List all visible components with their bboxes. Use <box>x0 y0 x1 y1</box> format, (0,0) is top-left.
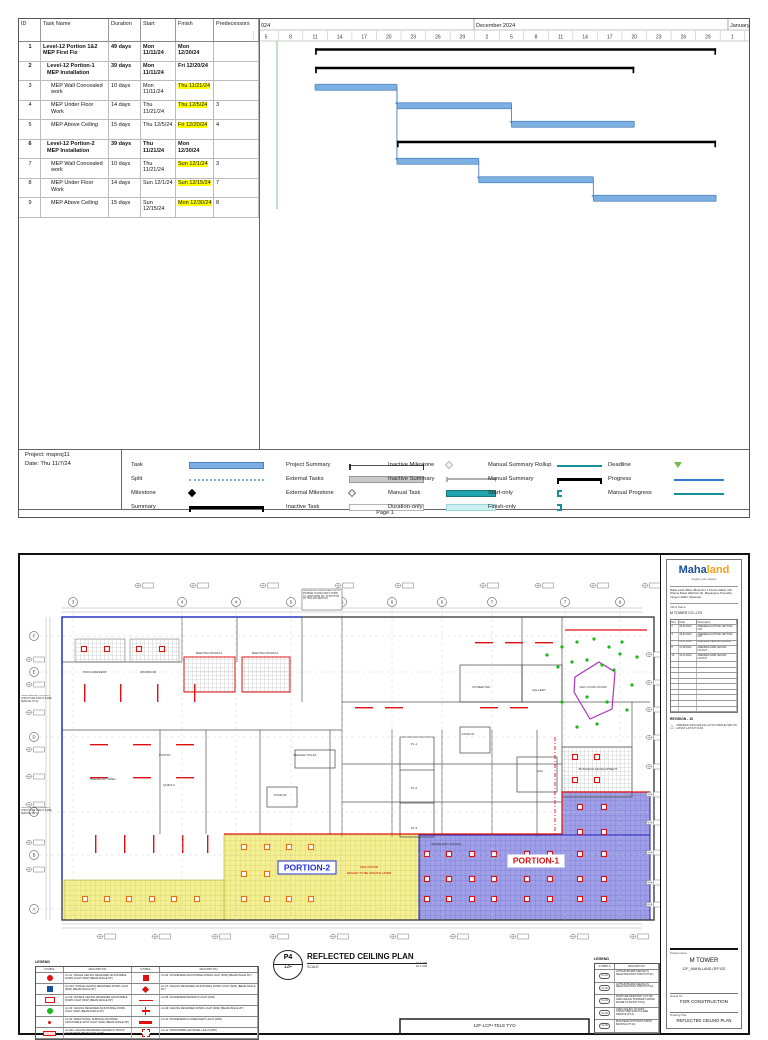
col-header-finish: Finish <box>176 19 214 41</box>
open-ceiling-note: OPEN CEILING (TO PAINT) STRUCTURE SOFFIT… <box>21 807 55 815</box>
revision-number <box>671 662 679 667</box>
task-predecessor <box>214 42 259 61</box>
task-duration: 10 days <box>109 81 141 100</box>
task-start: Thu 11/21/24 <box>141 140 176 159</box>
col-header-duration: Duration <box>109 19 141 41</box>
svg-text:PL-1: PL-1 <box>411 742 418 746</box>
task-predecessor: 8 <box>214 198 259 217</box>
gantt-task-row: 4 MEP Under Floor Work 14 days Thu 11/21… <box>19 101 259 121</box>
revision-date: 21.08.2024 <box>679 646 697 653</box>
svg-text:17: 17 <box>607 35 613 41</box>
revision-desc <box>697 695 737 700</box>
svg-text:11: 11 <box>558 35 563 41</box>
ceiling-description: MOISTURE RESISTANT GYP. BD. GRID CEILING… <box>615 995 659 1007</box>
cl-h-desc: DESCRIPTION <box>615 964 659 969</box>
revision-number: 7 <box>671 641 679 646</box>
revision-number: 2 <box>671 625 679 632</box>
task-start: Mon 11/11/24 <box>141 42 176 61</box>
ceiling-tag-icon: CL-03 <box>599 998 610 1004</box>
mahaland-logo: Mahaland <box>667 564 741 576</box>
ceiling-tag-icon: CL-02 <box>599 985 610 991</box>
light-symbol-icon <box>48 1021 51 1024</box>
task-start: Mon 11/11/24 <box>141 62 176 81</box>
light-description: LG-01: SINGLE CEILING RECESSED ADJUSTABL… <box>64 973 132 983</box>
legend-label-deadline: Deadline <box>608 462 631 468</box>
light-symbol-icon <box>142 1007 150 1015</box>
legend-swatch-milestone-black <box>188 489 196 497</box>
svg-text:26: 26 <box>435 35 441 41</box>
svg-text:PL-3: PL-3 <box>411 826 418 830</box>
task-name: Level-12 Portion-1 MEP Installation <box>41 62 109 81</box>
ceiling-description: GYPSUM BOARD CEILING IN SELECTED PAINT F… <box>615 983 659 995</box>
svg-text:PANTRY: PANTRY <box>159 753 171 757</box>
ceiling-tag-icon: CL-04 <box>599 1010 610 1016</box>
task-id: 9 <box>19 198 41 217</box>
meeting-room-hatched-area <box>184 657 235 692</box>
project-name-text: Project: msproj11 <box>25 452 121 458</box>
legend-swatch-milestone-pale <box>445 461 453 469</box>
gantt-task-row: 2 Level-12 Portion-1 MEP Installation 39… <box>19 62 259 82</box>
task-finish: Mon 12/30/24 <box>178 44 199 57</box>
revision-number: 10 <box>671 654 679 661</box>
svg-text:8: 8 <box>289 35 292 41</box>
svg-text:BREAKOUT AREA: BREAKOUT AREA <box>90 777 115 781</box>
lighting-legend-row: LG-04A: CEILING RECESSED MAGNETIC TRACK … <box>36 1028 258 1039</box>
svg-text:QUIET-2: QUIET-2 <box>163 783 175 787</box>
legend-top-border <box>19 449 749 450</box>
delta-triangle-icon: △ <box>670 724 674 730</box>
task-id: 5 <box>19 120 41 139</box>
svg-text:29: 29 <box>460 35 466 41</box>
revision-date <box>679 701 697 706</box>
project-info-box: Project: msproj11 Date: Thu 11/7/24 <box>19 449 122 509</box>
svg-text:CEO LIVING ROOM: CEO LIVING ROOM <box>579 685 607 689</box>
task-id: 2 <box>19 62 41 81</box>
svg-text:WARROOM: WARROOM <box>140 670 157 674</box>
task-predecessor: 7 <box>214 179 259 198</box>
legend-swatch-start-only <box>557 490 562 497</box>
ceiling-legend-row: CL-03 MOISTURE RESISTANT GYP. BD. GRID C… <box>595 995 659 1008</box>
task-finish: Thu 12/5/24 <box>178 102 207 108</box>
light-symbol-icon <box>45 997 55 1003</box>
svg-text:23: 23 <box>411 35 417 41</box>
revision-row: 10 04.10.2024 AMENDED GRID CEILING LAYOU… <box>671 654 737 662</box>
revision-number <box>671 707 679 712</box>
svg-text:FEMALE TOILET: FEMALE TOILET <box>293 753 316 757</box>
ceiling-legend-title: LEGEND <box>594 957 660 961</box>
ceiling-legend-row: CL-02 GYPSUM BOARD CEILING IN SELECTED P… <box>595 983 659 996</box>
revision-desc <box>697 662 737 667</box>
legend-label-manual-progress: Manual Progress <box>608 490 652 496</box>
light-symbol-icon <box>139 1021 152 1024</box>
task-start: Thu 11/21/24 <box>141 101 176 120</box>
light-symbol-icon <box>143 975 149 981</box>
ceiling-description: OPEN CEILING TO PAINT STRUCTURE SOFFIT &… <box>615 1008 659 1020</box>
legend-label-start-only: Start-only <box>488 490 513 496</box>
gantt-task-table: ID Task Name Duration Start Finish Prede… <box>19 19 259 218</box>
revision-row: 3 28.04.2024 AMENDED LIGHTING SETTING OU… <box>671 633 737 641</box>
svg-text:VP MEETING: VP MEETING <box>472 685 491 689</box>
light-symbol-icon <box>47 986 53 992</box>
revision-number <box>671 673 679 678</box>
light-description: LG-02: DOUBLE CEILING RECESSED ADJUSTABL… <box>64 995 132 1005</box>
task-name: Level-12 Portion-2 MEP Installation <box>41 140 109 159</box>
lighting-legend-row: LG-01A: SINGLE CEILING RECESSED DOWN LIG… <box>36 984 258 995</box>
drawing-title-label: Drawing Title: <box>670 1013 738 1017</box>
task-name: MEP Under Floor Work <box>41 101 109 120</box>
issued-for-label: Issued for: <box>670 994 738 998</box>
issued-for-block: Issued for: FOR CONSTRUCTION <box>670 993 738 1004</box>
light-symbol-icon <box>47 1008 53 1014</box>
legend-swatch-split-dotted <box>189 479 264 481</box>
gantt-bars <box>315 48 716 201</box>
svg-text:11: 11 <box>312 35 317 41</box>
task-start: Thu 12/5/24 <box>141 120 176 139</box>
svg-text:14: 14 <box>582 35 588 41</box>
revision-date <box>679 662 697 667</box>
gantt-task-row: 6 Level-12 Portion-2 MEP Installation 39… <box>19 140 259 160</box>
light-description: LG-04A: CEILING RECESSED MAGNETIC TRACK … <box>64 1028 132 1038</box>
task-duration: 15 days <box>109 198 141 217</box>
task-predecessor <box>214 81 259 100</box>
task-predecessor: 4 <box>214 120 259 139</box>
task-name: MEP Under Floor Work <box>41 179 109 198</box>
ll-h-symbol2: SYMBOL <box>132 967 160 972</box>
issued-for-value: FOR CONSTRUCTION <box>670 999 738 1004</box>
revision-note-text: AMENDED GRID CEILING LAYOUT REFLECTED ON… <box>676 724 738 730</box>
legend-label-external-tasks: External Tasks <box>286 476 324 482</box>
task-start: Sun 12/1/24 <box>141 179 176 198</box>
office-address: Maha Land Office: Block No (7-KA A/1+GRA… <box>670 586 738 600</box>
revision-date <box>679 673 697 678</box>
svg-text:23: 23 <box>656 35 662 41</box>
revision-row: 2 05.03.2024 AMENDED LIGHTING SETTING OU… <box>671 625 737 633</box>
svg-text:5: 5 <box>265 35 268 41</box>
ll-h-desc2: DESCRIPTION <box>160 967 258 972</box>
revision-desc: AMENDED LIGHTING SETTING OUT <box>697 633 737 640</box>
gantt-task-row: 3 MEP Wall Concealed work 10 days Mon 11… <box>19 81 259 101</box>
svg-text:DESIGN TO BE UPDATE LATER: DESIGN TO BE UPDATE LATER <box>347 871 392 875</box>
svg-text:20: 20 <box>631 35 637 41</box>
task-duration: 39 days <box>109 62 141 81</box>
svg-text:PROCUREMENT: PROCUREMENT <box>83 670 107 674</box>
task-duration: 15 days <box>109 120 141 139</box>
gantt-table-header: ID Task Name Duration Start Finish Prede… <box>19 19 259 42</box>
task-id: 4 <box>19 101 41 120</box>
task-name: MEP Above Ceiling <box>41 120 109 139</box>
legend-swatch-line-teal <box>557 465 602 468</box>
task-bar <box>315 84 397 90</box>
svg-text:PORTION-1: PORTION-1 <box>513 856 560 866</box>
legend-label-task: Task <box>131 462 143 468</box>
light-description: LG-07: CEILING RECESSED ADJUSTABLE DOWN … <box>160 984 258 994</box>
legend-label-manual-task: Manual Task <box>388 490 420 496</box>
col-header-id: ID <box>19 19 41 41</box>
logo-tagline: begins your dream <box>667 577 741 581</box>
task-bar <box>397 103 512 109</box>
light-symbol-icon <box>142 1029 150 1037</box>
gantt-task-row: 5 MEP Above Ceiling 15 days Thu 12/5/24 … <box>19 120 259 140</box>
project-name: M TOWER <box>670 958 738 964</box>
legend-label-inactive-milestone: Inactive Milestone <box>388 462 434 468</box>
task-bar <box>512 121 635 127</box>
light-description: LG-09: CEILING RECESSED DOWN LIGHT (60W)… <box>160 1006 258 1016</box>
svg-text:024: 024 <box>261 23 270 29</box>
revision-desc: AMENDED LIGHTING SETTING OUT <box>697 625 737 632</box>
task-predecessor: 3 <box>214 159 259 178</box>
revision-number <box>671 695 679 700</box>
light-description: LG-03: CEILING RECESSED ADJUSTABLE DOWN … <box>64 1006 132 1016</box>
task-finish: Mon 12/30/24 <box>178 200 212 206</box>
svg-text:5: 5 <box>510 35 513 41</box>
revision-date: 05.03.2024 <box>679 625 697 632</box>
svg-text:E: E <box>33 670 36 675</box>
lighting-legend-row: LG-03: CEILING RECESSED ADJUSTABLE DOWN … <box>36 1006 258 1017</box>
revision-date <box>679 695 697 700</box>
task-finish: Sun 12/1/24 <box>178 161 208 167</box>
light-description: LG-04: DIRECTIONAL SURFACE MOUNTED ADJUS… <box>64 1017 132 1027</box>
task-bar <box>593 195 716 201</box>
drawing-number-bubble: P4 12F <box>273 950 303 980</box>
light-description: LG-06: SUSPENDED ADJUSTABLE DOWN LIGHT (… <box>160 973 258 983</box>
task-name: Level-12 Portion 1&2 MEP First Fix <box>41 42 109 61</box>
revision-number <box>671 668 679 673</box>
scale-a0: A0 1:200 <box>403 965 427 968</box>
ceiling-legend: LEGEND SYMBOLS DESCRIPTION CL-01 GYPSUM … <box>594 957 660 1034</box>
task-link-lines <box>395 87 595 198</box>
gantt-task-row: 1 Level-12 Portion 1&2 MEP First Fix 49 … <box>19 42 259 62</box>
task-predecessor <box>214 140 259 159</box>
light-description: LG-10: SUSPENDED FLUORESCENT LIGHT (60W) <box>160 1017 258 1027</box>
task-duration: 14 days <box>109 101 141 120</box>
light-description: LG-11: (600X600MM) LED PANEL LIGHT (60W) <box>160 1028 258 1038</box>
task-duration: 49 days <box>109 42 141 61</box>
task-finish: Mon 12/30/24 <box>178 141 199 154</box>
page-root: { "gantt": { "table": { "headers": ["ID"… <box>0 0 768 1024</box>
lighting-legend: LEGEND SYMBOL DESCRIPTION SYMBOL DESCRIP… <box>35 960 259 1040</box>
summary-bar <box>397 141 716 144</box>
lighting-legend-row: LG-02: DOUBLE CEILING RECESSED ADJUSTABL… <box>36 995 258 1006</box>
svg-text:MEETING ROOM-2: MEETING ROOM-2 <box>252 651 279 655</box>
svg-text:PORTION-2: PORTION-2 <box>284 863 331 873</box>
revision-date: 28.04.2024 <box>679 633 697 640</box>
revision-date <box>679 690 697 695</box>
svg-text:14: 14 <box>337 35 343 41</box>
revision-number <box>671 701 679 706</box>
light-description: LG-08: SUSPENDED PENDANT LIGHT (60W) <box>160 995 258 1005</box>
lighting-legend-row: LG-04: DIRECTIONAL SURFACE MOUNTED ADJUS… <box>36 1017 258 1028</box>
task-finish: Fri 12/20/24 <box>178 63 208 69</box>
task-id: 8 <box>19 179 41 198</box>
revision-number: 3 <box>671 633 679 640</box>
legend-label-external-milestone: External Milestone <box>286 490 334 496</box>
revision-row <box>671 707 737 713</box>
revision-desc: AMENDED GRID CEILING LAYOUT <box>697 654 737 661</box>
client-label: Client Name: <box>670 605 738 609</box>
project-date-text: Date: Thu 11/7/24 <box>25 461 121 467</box>
floor-plan-page: 3445566778FEDCBAPROCUREMENTWARROOMBREAKO… <box>18 553 750 1035</box>
revision-note: △ AMENDED GRID CEILING LAYOUT REFLECTED … <box>670 724 738 730</box>
revision-date: 08.07.2024 <box>679 641 697 646</box>
col-header-predecessors: Predecessors <box>214 19 259 41</box>
revision-number: 8 <box>671 646 679 653</box>
gantt-chart-page: ID Task Name Duration Start Finish Prede… <box>18 18 750 518</box>
revision-date <box>679 684 697 689</box>
revision-date <box>679 679 697 684</box>
summary-bar <box>315 67 634 70</box>
revision-desc <box>697 673 737 678</box>
revision-desc: AMENDED CEILING PROFILE <box>697 641 737 646</box>
task-name: MEP Wall Concealed work <box>41 81 109 100</box>
svg-text:8: 8 <box>535 35 538 41</box>
task-finish: Sun 12/15/24 <box>178 180 211 186</box>
gantt-task-row: 8 MEP Under Floor Work 14 days Sun 12/1/… <box>19 179 259 199</box>
drawing-title-block: P4 12F REFLECTED CEILING PLAN SCALE A1 1… <box>273 950 473 984</box>
svg-text:AHU: AHU <box>537 769 543 773</box>
task-duration: 39 days <box>109 140 141 159</box>
task-start: Thu 11/21/24 <box>141 159 176 178</box>
revision-row: 8 21.08.2024 AMENDED GRID CEILING LAYOUT <box>671 646 737 654</box>
svg-text:2: 2 <box>486 35 489 41</box>
legend-swatch-deadline <box>674 462 682 468</box>
client-block: Client Name: M TOWER CO.,LTD <box>670 603 738 615</box>
page-number: Page 1 <box>19 510 751 516</box>
light-symbol-icon <box>142 985 149 992</box>
svg-text:A: A <box>33 907 36 912</box>
revision-desc <box>697 684 737 689</box>
light-symbol-icon <box>47 975 53 981</box>
revision-desc <box>697 668 737 673</box>
task-name: MEP Wall Concealed work <box>41 159 109 178</box>
svg-text:PL-2: PL-2 <box>411 786 418 790</box>
svg-text:MEETING ROOM-1: MEETING ROOM-1 <box>196 651 223 655</box>
legend-swatch-bar-blue <box>189 462 264 469</box>
revision-table: Rev Date Description 2 05.03.2024 AMENDE… <box>670 619 738 713</box>
legend-label-manual-summary: Manual Summary <box>488 476 533 482</box>
light-symbol-icon <box>43 1031 56 1036</box>
lighting-legend-row: LG-01: SINGLE CEILING RECESSED ADJUSTABL… <box>36 973 258 984</box>
ceiling-tag-icon: CL-01 <box>599 973 610 979</box>
drawing-title-block-bottom: Drawing Title: REFLECTED CEILING PLAN <box>670 1012 738 1023</box>
project-subtitle: 12F_MAHA LAND OFFICE <box>670 967 738 971</box>
task-bar <box>397 158 479 164</box>
task-finish: Thu 11/21/24 <box>178 83 210 89</box>
svg-text:26: 26 <box>681 35 687 41</box>
task-duration: 14 days <box>109 179 141 198</box>
revision-date <box>679 668 697 673</box>
legend-label-milestone: Milestone <box>131 490 156 496</box>
svg-text:BUSINESS DEVELOPMENT: BUSINESS DEVELOPMENT <box>579 767 618 771</box>
svg-text:CEO OFFICE: CEO OFFICE <box>360 865 378 869</box>
ceiling-description: BULKHEAD WITH PAINT FINISH BACKING (PT-0… <box>615 1020 659 1032</box>
svg-text:GALLERY: GALLERY <box>532 688 546 692</box>
client-name: M TOWER CO.,LTD <box>670 611 738 615</box>
revision-desc <box>697 701 737 706</box>
bubble-divider <box>274 964 302 965</box>
light-symbol-icon <box>139 1000 153 1001</box>
ll-h-symbol1: SYMBOL <box>36 967 64 972</box>
task-start: Sun 12/15/24 <box>141 198 176 217</box>
legend-label-manual-summary-rollup: Manual Summary Rollup <box>488 462 551 468</box>
revision-desc: AMENDED GRID CEILING LAYOUT <box>697 646 737 653</box>
task-id: 6 <box>19 140 41 159</box>
timeline-header: 024December 2024January 2581114172023262… <box>254 19 749 41</box>
svg-text:D: D <box>32 735 35 740</box>
current-revision-text: REVISION - 10 <box>670 717 738 721</box>
drawing-number: P4 <box>274 954 302 961</box>
gantt-task-row: 7 MEP Wall Concealed work 10 days Thu 11… <box>19 159 259 179</box>
task-predecessor: 3 <box>214 101 259 120</box>
revision-desc <box>697 679 737 684</box>
legend-swatch-summary-black <box>189 506 264 509</box>
revision-date: 04.10.2024 <box>679 654 697 661</box>
svg-text:17: 17 <box>361 35 367 41</box>
task-id: 1 <box>19 42 41 61</box>
revision-number <box>671 690 679 695</box>
task-id: 7 <box>19 159 41 178</box>
svg-text:January 2: January 2 <box>730 23 749 29</box>
svg-text:F: F <box>33 634 36 639</box>
gantt-task-row: 9 MEP Above Ceiling 15 days Sun 12/15/24… <box>19 198 259 218</box>
task-finish: Fri 12/20/24 <box>178 122 207 128</box>
legend-label-progress: Progress <box>608 476 631 482</box>
lighting-legend-title: LEGEND <box>35 960 259 964</box>
legend-swatch-summary-black <box>557 478 602 481</box>
legend-swatch-milestone-gray <box>348 489 356 497</box>
task-id: 3 <box>19 81 41 100</box>
svg-text:December 2024: December 2024 <box>476 23 515 29</box>
svg-text:20: 20 <box>386 35 392 41</box>
legend-swatch-line-teal <box>674 493 724 496</box>
ceiling-legend-row: CL-01 GYPSUM BOARD CEILING IN SELECTED P… <box>595 970 659 983</box>
legend-label-inactive-summary: Inactive Summary <box>388 476 434 482</box>
meeting-room-hatched-area <box>242 657 290 692</box>
revision-number <box>671 679 679 684</box>
table-chart-divider <box>259 19 260 449</box>
project-name-block: Project name: M TOWER 12F_MAHA LAND OFFI… <box>670 948 738 971</box>
revision-date <box>679 707 697 712</box>
revision-desc <box>697 707 737 712</box>
revision-number <box>671 684 679 689</box>
drawing-title-value: REFLECTED CEILING PLAN <box>670 1018 738 1023</box>
task-bar <box>479 177 594 183</box>
svg-text:STAIR-01: STAIR-01 <box>462 732 475 736</box>
ceiling-legend-row: CL-04 OPEN CEILING TO PAINT STRUCTURE SO… <box>595 1008 659 1021</box>
svg-text:SECRETARY OFFICE: SECRETARY OFFICE <box>431 842 461 846</box>
task-start: Mon 11/11/24 <box>141 81 176 100</box>
project-name-label: Project name: <box>670 951 738 955</box>
ll-h-desc1: DESCRIPTION <box>64 967 132 972</box>
cl-h-symbols: SYMBOLS <box>595 964 615 969</box>
col-header-start: Start <box>141 19 176 41</box>
task-duration: 10 days <box>109 159 141 178</box>
sheet-title-block: Mahaland begins your dream Maha Land Off… <box>660 555 748 1033</box>
open-ceiling-note: OPEN CEILING (TO PAINT) STRUCTURE SOFFIT… <box>21 695 55 703</box>
task-name: MEP Above Ceiling <box>41 198 109 217</box>
svg-text:STAIR-02: STAIR-02 <box>274 793 287 797</box>
svg-text:1: 1 <box>731 35 734 41</box>
ceiling-description: GYPSUM BOARD CEILING IN SELECTED PAINT F… <box>615 970 659 982</box>
revision-desc <box>697 690 737 695</box>
task-predecessor <box>214 62 259 81</box>
legend-label-split: Split <box>131 476 142 482</box>
col-header-task-name: Task Name <box>41 19 109 41</box>
ceiling-legend-row: CL-05 BULKHEAD WITH PAINT FINISH BACKING… <box>595 1020 659 1033</box>
svg-text:29: 29 <box>705 35 711 41</box>
light-description: LG-01A: SINGLE CEILING RECESSED DOWN LIG… <box>64 984 132 994</box>
svg-text:B: B <box>33 853 36 858</box>
summary-bar <box>315 48 716 51</box>
